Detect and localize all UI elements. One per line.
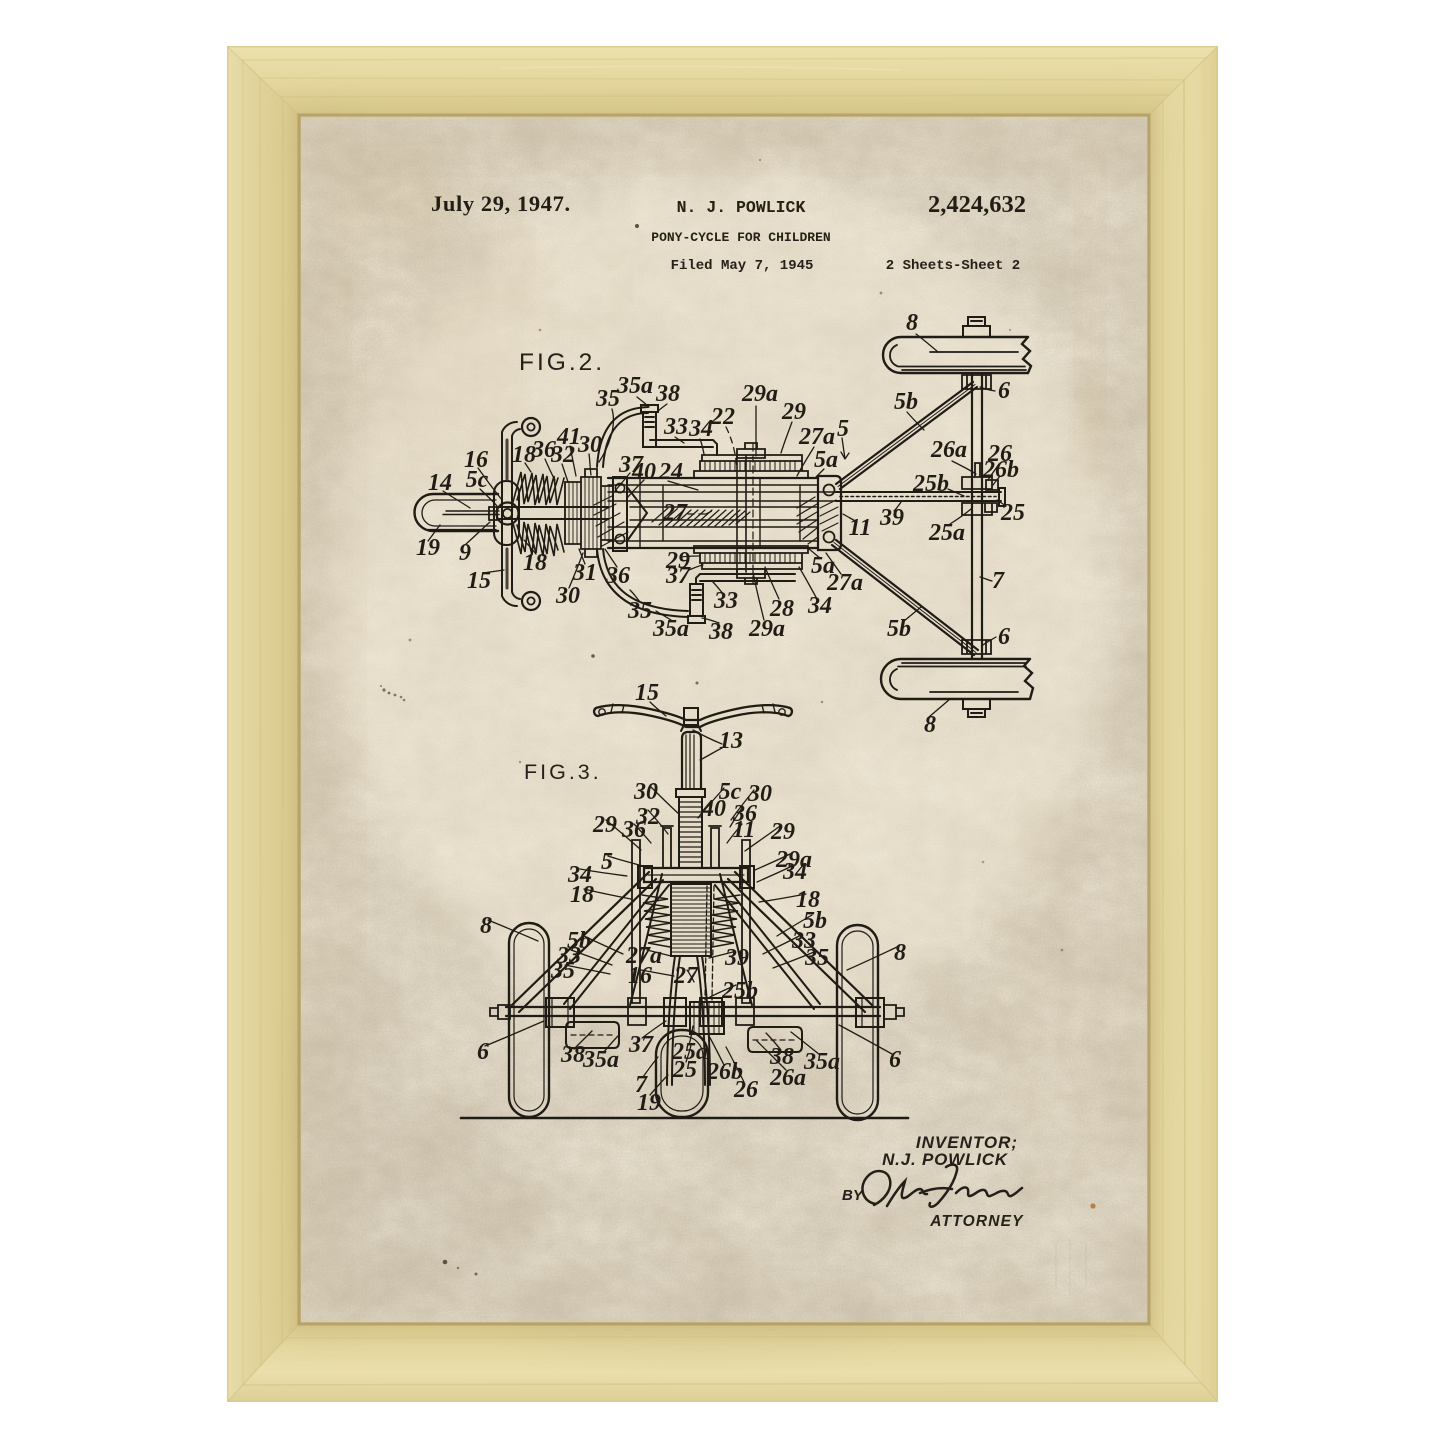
svg-text:25b: 25b	[912, 471, 949, 497]
svg-text:36: 36	[605, 563, 630, 589]
svg-text:8: 8	[894, 940, 906, 966]
svg-text:PONY-CYCLE FOR CHILDREN: PONY-CYCLE FOR CHILDREN	[651, 230, 830, 245]
svg-text:19: 19	[416, 535, 440, 561]
svg-text:11: 11	[733, 817, 756, 843]
svg-text:27a: 27a	[826, 570, 863, 596]
svg-text:6: 6	[889, 1047, 901, 1073]
svg-text:29a: 29a	[741, 381, 778, 407]
svg-text:27: 27	[662, 500, 688, 526]
svg-text:14: 14	[428, 470, 452, 496]
svg-text:29a: 29a	[748, 616, 785, 642]
svg-text:N. J. POWLICK: N. J. POWLICK	[677, 198, 806, 217]
svg-text:40: 40	[701, 796, 726, 822]
svg-text:6: 6	[998, 378, 1010, 404]
svg-text:18: 18	[512, 442, 536, 468]
svg-text:29: 29	[770, 819, 795, 845]
svg-text:6: 6	[998, 624, 1010, 650]
svg-text:25b: 25b	[721, 978, 758, 1004]
svg-text:27: 27	[673, 963, 699, 989]
svg-text:16: 16	[628, 963, 652, 989]
svg-text:ATTORNEY: ATTORNEY	[929, 1213, 1024, 1230]
svg-text:Filed May 7, 1945: Filed May 7, 1945	[671, 258, 814, 274]
svg-text:26b: 26b	[982, 457, 1019, 483]
svg-text:33: 33	[713, 588, 738, 614]
svg-text:8: 8	[480, 913, 492, 939]
svg-text:22: 22	[710, 404, 735, 430]
svg-text:25: 25	[1000, 500, 1025, 526]
svg-text:38: 38	[655, 381, 680, 407]
svg-text:35: 35	[627, 598, 652, 624]
svg-text:33: 33	[663, 414, 688, 440]
svg-text:8: 8	[924, 712, 936, 738]
svg-text:15: 15	[635, 680, 659, 706]
svg-text:26a: 26a	[930, 437, 967, 463]
svg-text:19: 19	[637, 1090, 661, 1116]
svg-text:38: 38	[560, 1042, 585, 1068]
svg-text:30: 30	[577, 432, 602, 458]
svg-text:35: 35	[804, 945, 829, 971]
svg-text:FIG.2.: FIG.2.	[519, 349, 605, 376]
svg-text:38: 38	[708, 619, 733, 645]
svg-text:39: 39	[724, 945, 749, 971]
svg-text:25a: 25a	[928, 520, 965, 546]
svg-text:5c: 5c	[466, 467, 489, 493]
svg-text:15: 15	[467, 568, 491, 594]
svg-text:6: 6	[477, 1039, 489, 1065]
svg-text:13: 13	[719, 728, 743, 754]
svg-text:37: 37	[665, 563, 691, 589]
svg-text:18: 18	[570, 882, 594, 908]
svg-text:5a: 5a	[814, 447, 838, 473]
svg-text:2,424,632: 2,424,632	[928, 191, 1026, 218]
svg-text:39: 39	[879, 505, 904, 531]
svg-text:35a: 35a	[652, 616, 689, 642]
svg-text:36: 36	[621, 817, 646, 843]
svg-text:34: 34	[807, 593, 832, 619]
svg-text:34: 34	[782, 859, 807, 885]
svg-text:32: 32	[550, 442, 575, 468]
svg-text:30: 30	[555, 583, 580, 609]
svg-text:38: 38	[769, 1044, 794, 1070]
svg-text:35a: 35a	[582, 1047, 619, 1073]
svg-text:30: 30	[633, 779, 658, 805]
svg-text:9: 9	[459, 540, 471, 566]
svg-text:FIG.3.: FIG.3.	[524, 760, 602, 784]
svg-text:40: 40	[631, 459, 656, 485]
svg-text:7: 7	[992, 568, 1005, 594]
svg-text:35: 35	[550, 958, 575, 984]
svg-text:35a: 35a	[803, 1049, 840, 1075]
svg-text:5: 5	[837, 416, 849, 442]
svg-text:34: 34	[688, 416, 713, 442]
svg-text:5b: 5b	[894, 389, 918, 415]
svg-text:24: 24	[658, 459, 683, 485]
svg-text:35a: 35a	[616, 373, 653, 399]
svg-text:11: 11	[849, 515, 872, 541]
svg-text:5b: 5b	[887, 616, 911, 642]
svg-text:29: 29	[592, 812, 617, 838]
svg-text:8: 8	[906, 310, 918, 336]
svg-text:29: 29	[781, 399, 806, 425]
svg-text:25: 25	[672, 1057, 697, 1083]
svg-text:2 Sheets-Sheet 2: 2 Sheets-Sheet 2	[886, 258, 1020, 274]
svg-text:26: 26	[733, 1077, 758, 1103]
svg-text:37: 37	[628, 1032, 654, 1058]
svg-text:5: 5	[601, 849, 613, 875]
svg-text:July 29, 1947.: July 29, 1947.	[431, 191, 571, 216]
svg-text:18: 18	[523, 550, 547, 576]
